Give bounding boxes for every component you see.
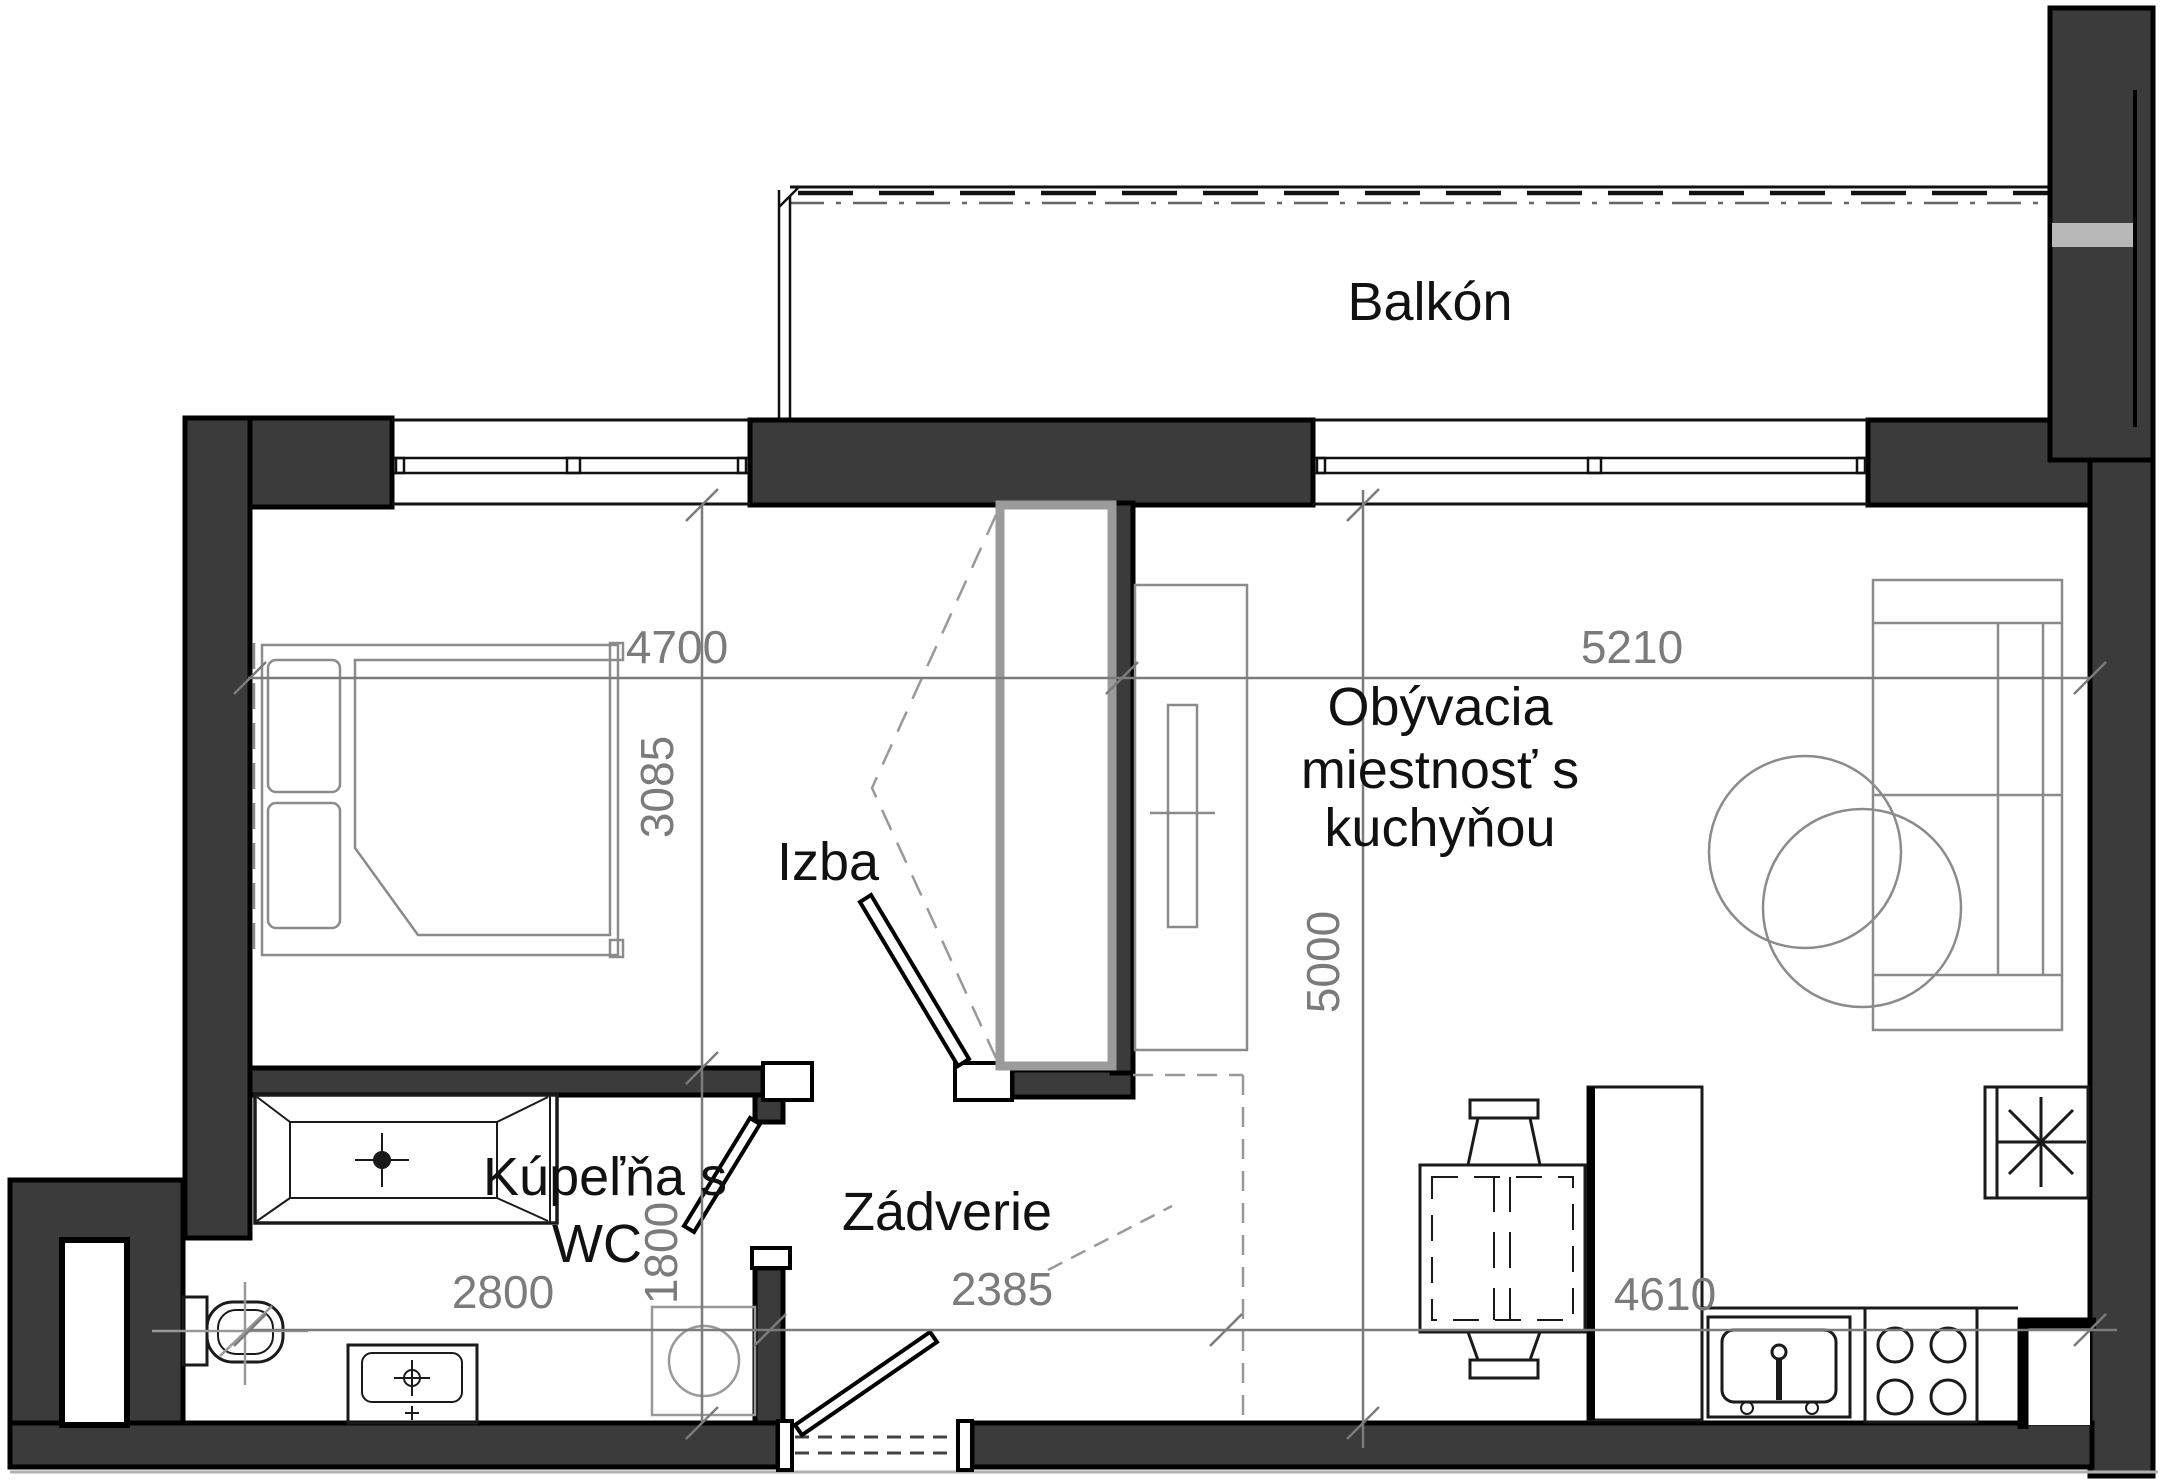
- bedroom-label: Izba: [777, 832, 880, 892]
- round-table-bottom: [1763, 809, 1961, 1007]
- entrance-door-leaf: [795, 1332, 937, 1435]
- sofa: [1873, 580, 2062, 1030]
- bed: [254, 643, 623, 957]
- dining-table: [1420, 1165, 1585, 1332]
- entrance-swing-dash: [1048, 1206, 1172, 1270]
- dim-living-depth: 5000: [1297, 911, 1349, 1013]
- dim-bathroom-depth: 1800: [635, 1202, 687, 1304]
- entrance-door-jamb-right: [958, 1421, 972, 1470]
- chair-top: [1468, 1100, 1540, 1165]
- wall-bottom-right: [972, 1423, 2092, 1467]
- kitchen: [1133, 1075, 2088, 1422]
- wall-left: [185, 418, 250, 1238]
- wall-bathroom-top: [250, 1068, 763, 1095]
- wall-top-middle-block: [750, 420, 1313, 505]
- bathroom-door-jamb: [752, 1248, 790, 1268]
- bedroom-door-jamb-left: [763, 1063, 812, 1100]
- kitchen-sink: [1708, 1317, 1850, 1417]
- dim-kitchen-run: 4610: [1614, 1268, 1716, 1320]
- bathroom-label-line2: WC: [552, 1214, 642, 1274]
- wall-bathroom-partition-lower: [755, 1268, 783, 1423]
- wall-bottom-left: [10, 1423, 778, 1467]
- boiler-unit: [1985, 1087, 2088, 1198]
- bed-pillow-bottom: [268, 803, 340, 928]
- balcony: Balkón: [779, 187, 2050, 420]
- dim-bathroom-width: 2800: [452, 1266, 554, 1318]
- wardrobe-swing-dashes: [872, 515, 996, 1058]
- wall-right-lower: [2090, 460, 2153, 1476]
- right-wall-light-band: [2052, 223, 2133, 247]
- dim-living-width: 5210: [1581, 621, 1683, 673]
- dimensions: 4700 5210 3085 1800 5000 2800 2385 4610: [234, 489, 2117, 1448]
- sideboard: [1135, 585, 1247, 1050]
- dim-bedroom-width: 4700: [626, 621, 728, 673]
- living-label-line2: miestnosť s: [1301, 740, 1579, 800]
- bed-pillow-top: [268, 660, 340, 792]
- living-window: [1313, 420, 1868, 504]
- living-label-line3: kuchyňou: [1324, 798, 1555, 858]
- hall-label: Zádverie: [842, 1182, 1052, 1242]
- balcony-label: Balkón: [1347, 272, 1512, 332]
- bathroom-label-line1: Kúpeľňa s: [483, 1147, 727, 1207]
- tv: [1168, 705, 1197, 927]
- living-label-line1: Obývacia: [1327, 677, 1553, 737]
- entrance-door-jamb-left: [778, 1421, 792, 1470]
- floor-plan: Balkón: [0, 0, 2163, 1480]
- stove: [1865, 1308, 1977, 1422]
- bed-blanket: [355, 660, 610, 935]
- bedroom-door-leaf: [860, 895, 969, 1066]
- dim-hall-width: 2385: [951, 1263, 1053, 1315]
- niche-floor: [2028, 1328, 2090, 1425]
- washbasin: [348, 1345, 477, 1423]
- washing-machine: [652, 1307, 755, 1415]
- tall-cabinet: [1588, 1087, 1702, 1420]
- bedroom-window: [392, 420, 750, 504]
- chair-bottom: [1468, 1332, 1540, 1378]
- left-step-shaft-niche: [62, 1240, 127, 1425]
- dim-bedroom-depth: 3085: [631, 736, 683, 838]
- wardrobe: [1000, 505, 1112, 1066]
